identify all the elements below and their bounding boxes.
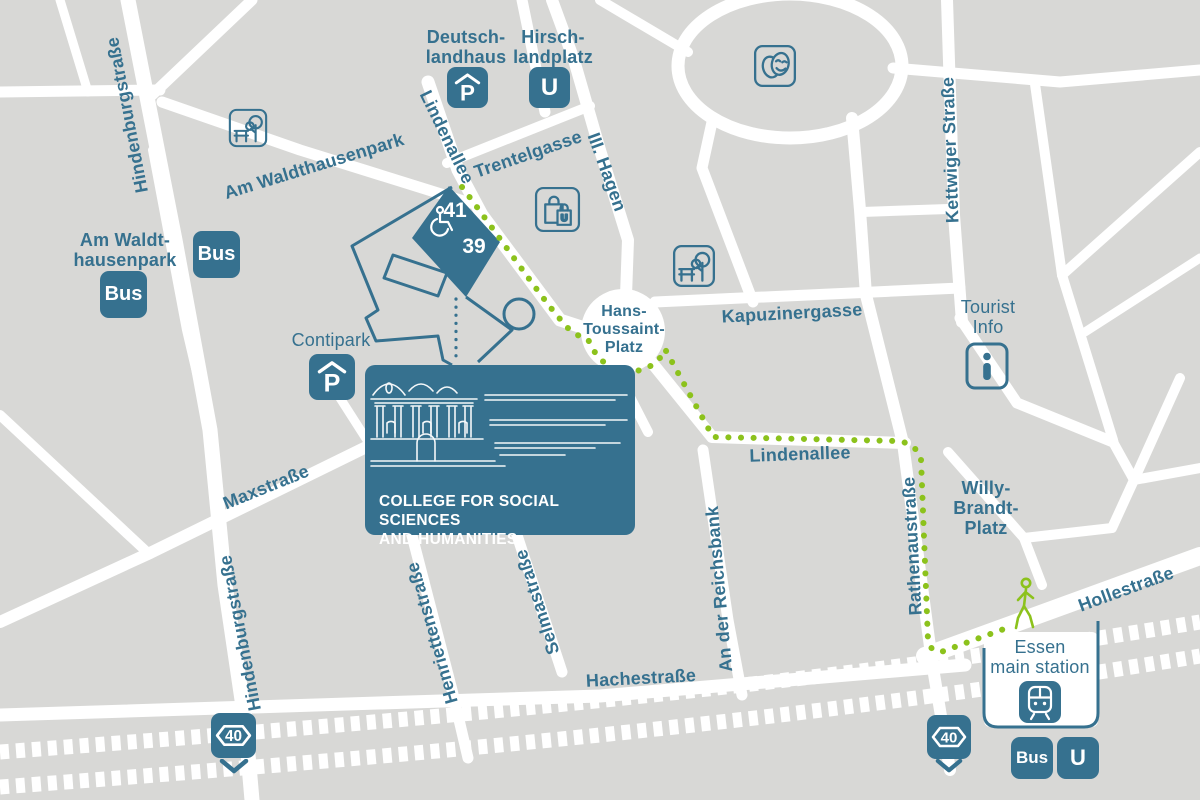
park-icon bbox=[671, 243, 717, 289]
chevron-down-icon bbox=[935, 759, 963, 774]
bus-stop-icon: Bus bbox=[100, 271, 147, 318]
svg-text:P: P bbox=[324, 370, 341, 398]
bus-stop-icon: Bus bbox=[1011, 737, 1053, 779]
college-title: COLLEGE FOR SOCIAL SCIENCES AND HUMANITI… bbox=[365, 488, 635, 549]
place-label-hans-toussaint-platz: Hans- Toussaint- Platz bbox=[583, 303, 665, 357]
place-label-tourist-info: TouristInfo bbox=[961, 297, 1015, 337]
parking-garage-icon: P bbox=[309, 354, 355, 400]
college-building-illustration bbox=[365, 365, 635, 483]
park-icon bbox=[227, 107, 269, 149]
svg-text:P: P bbox=[460, 81, 475, 106]
shopping-district-icon: U bbox=[533, 185, 582, 234]
theater-masks-icon bbox=[752, 43, 798, 89]
chevron-down-icon bbox=[219, 759, 249, 775]
ubahn-station-icon: U bbox=[1057, 737, 1099, 779]
train-station-icon bbox=[1019, 681, 1061, 723]
svg-text:U: U bbox=[561, 213, 568, 223]
parking-garage-icon: P bbox=[447, 67, 488, 108]
motorway-40-icon: 40 bbox=[927, 715, 971, 759]
place-label-contipark: Contipark bbox=[292, 330, 371, 350]
city-map-essen: Hindenburgstraße Hindenburgstraße Am Wal… bbox=[0, 0, 1200, 800]
place-label-essen-main-station: Essenmain station bbox=[990, 637, 1089, 677]
place-label-am-waldthausenpark-stop: Am Waldt-hausenpark bbox=[73, 230, 176, 270]
svg-text:40: 40 bbox=[225, 728, 242, 745]
street-label-lindenallee-east: Lindenallee bbox=[749, 442, 851, 466]
motorway-40-icon: 40 bbox=[211, 713, 256, 758]
ubahn-station-icon: U bbox=[529, 67, 570, 108]
wheelchair-icon bbox=[427, 205, 457, 239]
bus-stop-icon: Bus bbox=[193, 231, 240, 278]
place-label-deutschlandhaus: Deutsch-landhaus bbox=[426, 27, 507, 67]
college-card: COLLEGE FOR SOCIAL SCIENCES AND HUMANITI… bbox=[365, 365, 635, 535]
pedestrian-icon bbox=[1008, 577, 1044, 631]
svg-text:40: 40 bbox=[941, 730, 958, 747]
building-number-39: 39 bbox=[462, 235, 485, 259]
place-label-willy-brandt-platz: Willy- Brandt- Platz bbox=[953, 478, 1018, 538]
tourist-info-icon bbox=[964, 341, 1010, 391]
place-label-hirschlandplatz: Hirsch-landplatz bbox=[513, 27, 593, 67]
